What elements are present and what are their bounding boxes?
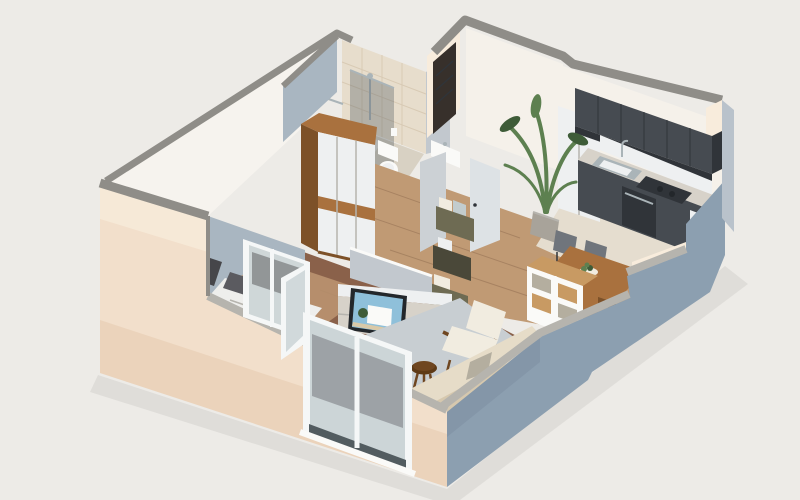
stool-top-highlight — [413, 361, 435, 371]
upper-cabinets-end — [712, 131, 722, 174]
wardrobe — [301, 113, 377, 265]
wall-end-face — [722, 100, 734, 232]
wardrobe-side — [301, 124, 318, 252]
fruit — [585, 263, 590, 268]
apartment-isometric-svg — [0, 0, 800, 500]
door-handle — [473, 203, 477, 207]
apartment-render-image — [0, 0, 800, 500]
burner — [669, 191, 675, 197]
flush-plate — [391, 128, 397, 136]
tv-screen-palm — [358, 308, 368, 318]
burner — [657, 186, 663, 192]
basin-tap — [443, 142, 447, 146]
